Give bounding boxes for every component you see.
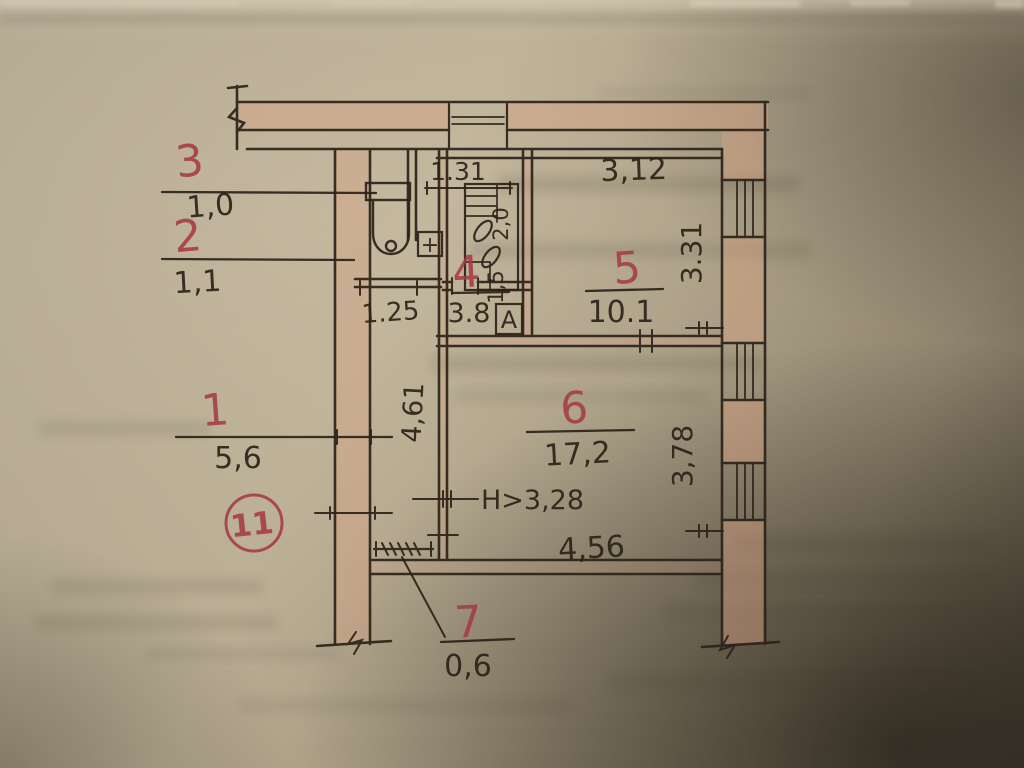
dim-hall-length: 4,61: [396, 382, 430, 444]
dim-ceiling-height: Н>3,28: [481, 485, 584, 516]
floor-plan-drawing: 1,0 1,1 5,6 17,2 10.1 3.8 0,6 3,12 4,56 …: [0, 0, 1024, 768]
dim-bottom-width: 4,56: [557, 529, 626, 567]
apartment-number-badge: 11: [226, 495, 282, 551]
area-room2: 1,1: [173, 264, 222, 301]
dim-tick-right-lower: [686, 525, 723, 537]
area-room6: 17,2: [543, 435, 612, 473]
page-edge-artifacts: [0, 0, 1024, 8]
dim-tick-right-upper: [686, 322, 723, 334]
apartment-number: 11: [229, 505, 276, 545]
dim-top-width: 3,12: [600, 152, 668, 189]
area-room7: 0,6: [444, 649, 492, 684]
room-number-4: 4: [451, 246, 482, 298]
photo-of-floor-plan: 1,0 1,1 5,6 17,2 10.1 3.8 0,6 3,12 4,56 …: [0, 0, 1024, 768]
area-room1: 5,6: [214, 441, 262, 476]
room-number-7: 7: [453, 596, 484, 648]
room-number-1: 1: [199, 384, 230, 437]
room-number-3: 3: [173, 135, 206, 189]
dim-niche-width: 1.31: [430, 157, 486, 186]
room-number-6: 6: [559, 382, 590, 434]
dim-right-upper: 3.31: [675, 222, 708, 284]
room-number-5: 5: [611, 242, 642, 295]
window-right-middle: [722, 343, 765, 400]
dim-hall-width: 1.25: [361, 296, 421, 330]
room-number-2: 2: [172, 210, 204, 263]
closet-letter: А: [501, 306, 518, 334]
area-room5: 10.1: [588, 295, 655, 330]
top-wall-niche: [449, 104, 507, 149]
plus-fixture-mark: +: [421, 233, 439, 258]
balcony-door-hatch: [374, 542, 445, 637]
dim-vent-width: 1,5: [484, 270, 508, 303]
dim-vent-depth: 2,0: [489, 207, 513, 240]
dim-right-lower: 3,78: [666, 425, 699, 487]
window-right-lower: [722, 463, 765, 520]
